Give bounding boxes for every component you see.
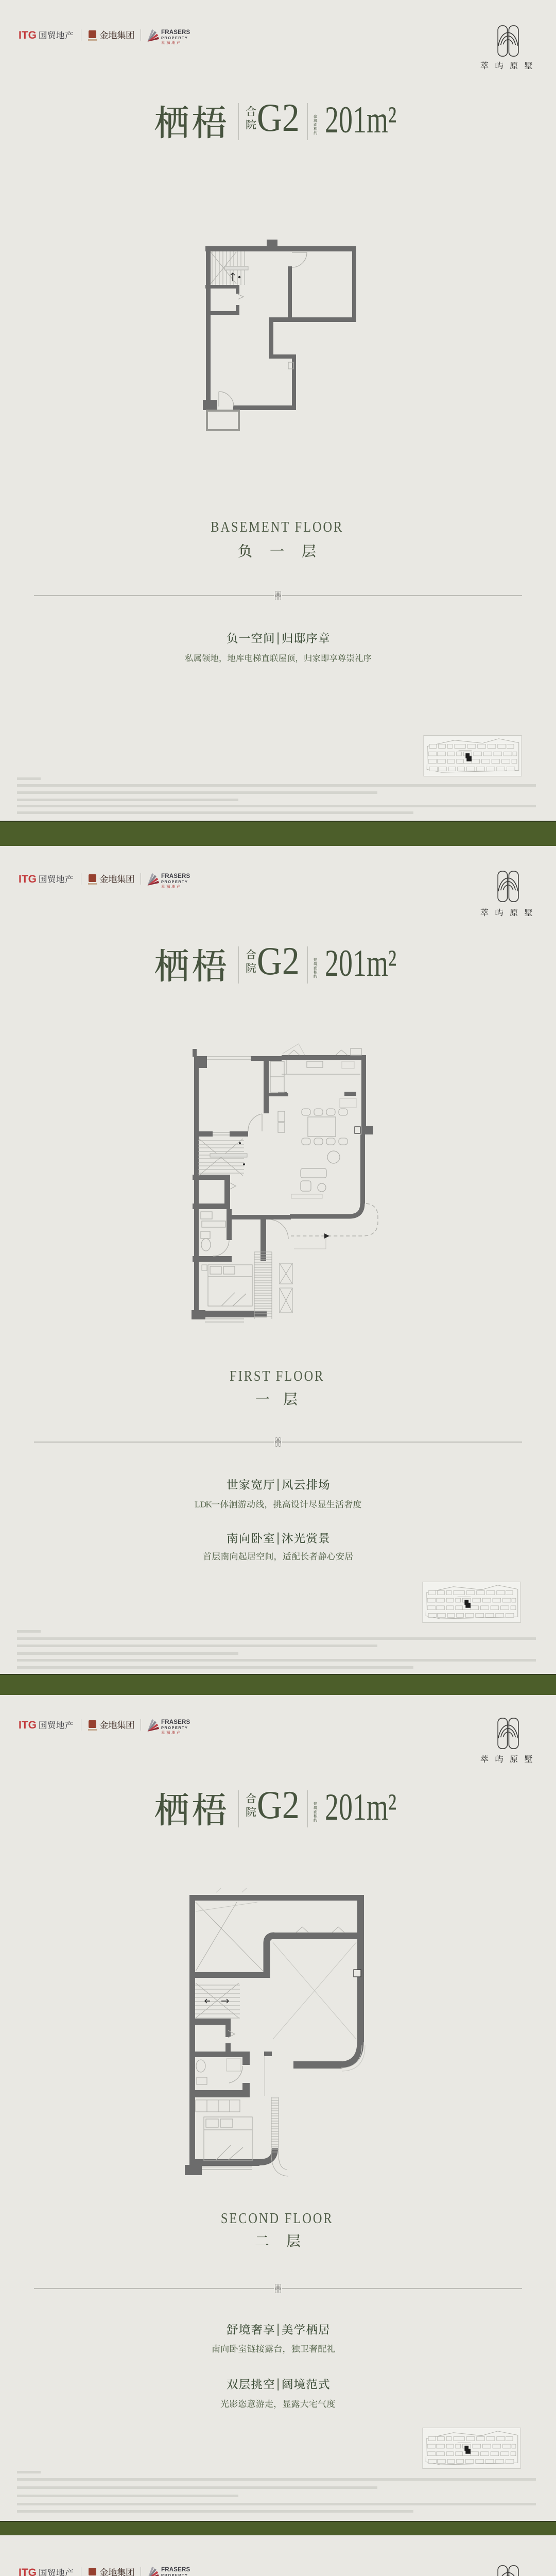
svg-text:K: K (205, 1499, 212, 1509)
svg-text:L: L (195, 1499, 200, 1509)
